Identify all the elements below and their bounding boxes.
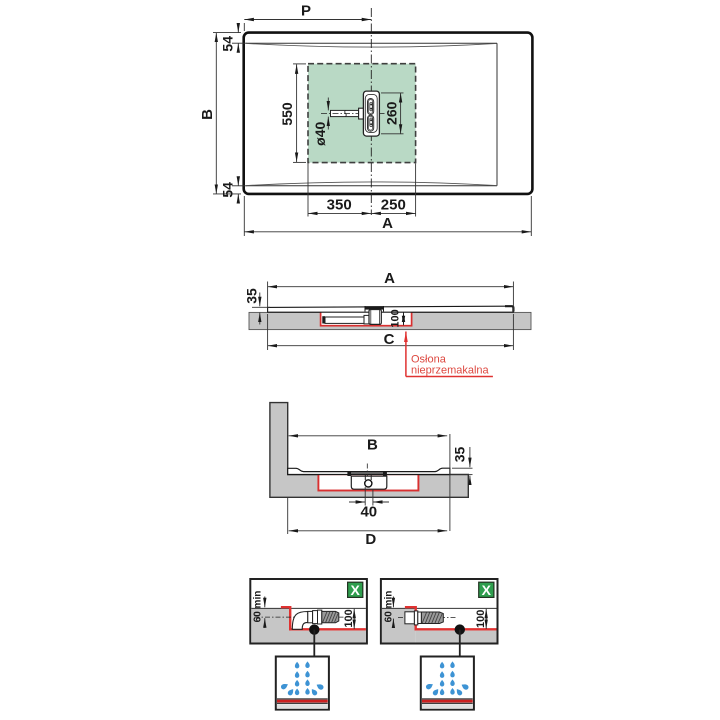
svg-text:54: 54 bbox=[220, 36, 236, 52]
svg-text:100: 100 bbox=[343, 609, 355, 627]
svg-text:35: 35 bbox=[451, 447, 467, 463]
svg-text:35: 35 bbox=[243, 288, 259, 304]
svg-text:P: P bbox=[301, 3, 311, 20]
svg-text:250: 250 bbox=[381, 197, 406, 214]
svg-text:100: 100 bbox=[390, 309, 402, 327]
svg-text:550: 550 bbox=[279, 102, 295, 126]
svg-text:54: 54 bbox=[220, 182, 236, 198]
svg-text:60 min: 60 min bbox=[384, 591, 395, 623]
svg-text:40: 40 bbox=[360, 504, 377, 521]
svg-text:X: X bbox=[482, 582, 492, 598]
svg-text:350: 350 bbox=[327, 197, 352, 214]
svg-text:A: A bbox=[384, 270, 395, 287]
svg-text:nieprzemakalna: nieprzemakalna bbox=[411, 364, 490, 376]
svg-text:B: B bbox=[199, 109, 216, 120]
svg-text:100: 100 bbox=[475, 610, 487, 628]
svg-text:260: 260 bbox=[383, 101, 399, 125]
svg-text:60 min: 60 min bbox=[253, 591, 264, 623]
svg-text:A: A bbox=[382, 215, 393, 232]
svg-text:B: B bbox=[367, 436, 378, 453]
svg-text:X: X bbox=[351, 582, 361, 598]
svg-text:ø40: ø40 bbox=[312, 122, 328, 146]
svg-text:D: D bbox=[365, 531, 376, 548]
svg-text:C: C bbox=[384, 331, 395, 348]
